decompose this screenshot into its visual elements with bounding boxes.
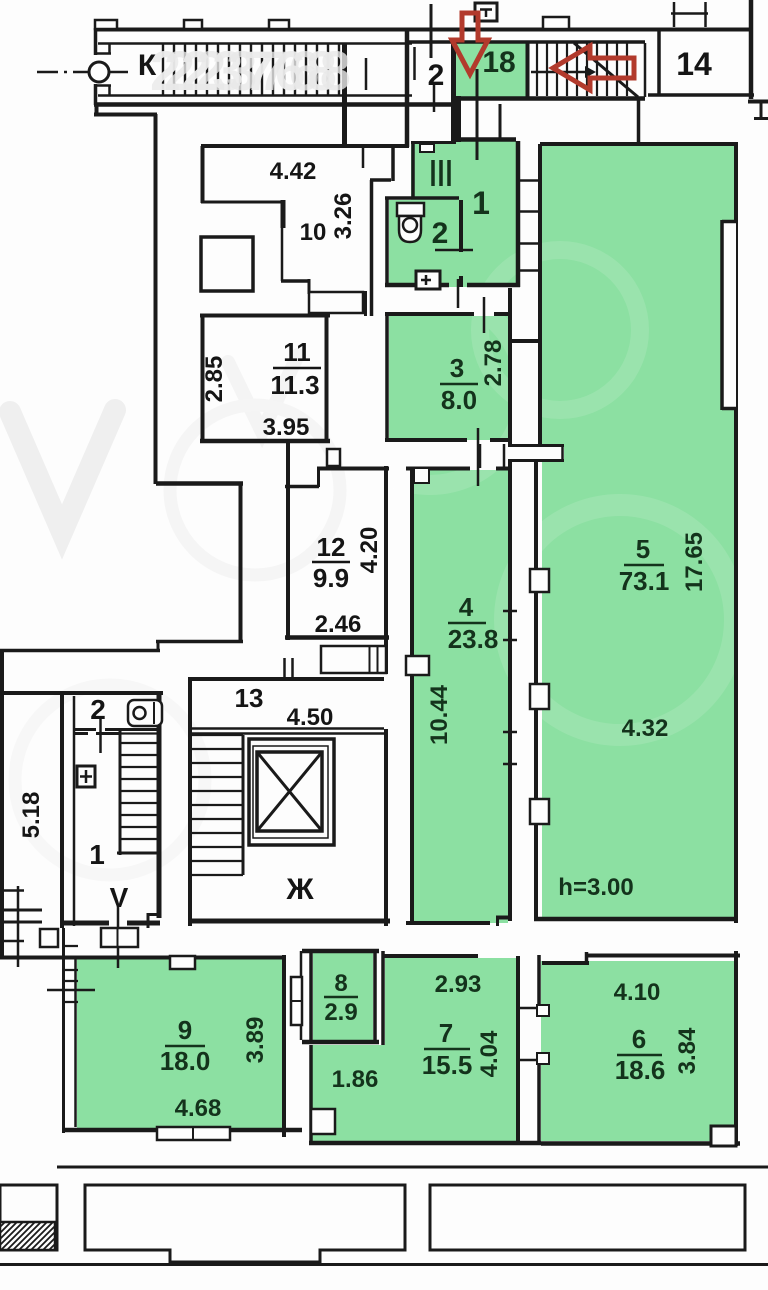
svg-text:11.3: 11.3 [270,370,319,400]
svg-text:73.1: 73.1 [619,566,670,596]
svg-text:3.84: 3.84 [674,1027,701,1074]
svg-text:2: 2 [432,217,449,250]
svg-text:2.93: 2.93 [435,971,482,998]
svg-text:10: 10 [300,219,327,246]
svg-text:2: 2 [90,694,106,725]
svg-text:2.46: 2.46 [315,611,362,638]
svg-text:23.8: 23.8 [448,624,499,654]
svg-text:10.44: 10.44 [426,684,453,745]
svg-text:18: 18 [482,46,515,79]
svg-text:1: 1 [89,839,105,870]
svg-text:4.10: 4.10 [614,979,661,1006]
svg-text:17.65: 17.65 [681,532,708,592]
svg-text:5.18: 5.18 [18,792,45,839]
svg-text:18.6: 18.6 [615,1055,666,1085]
svg-text:2.85: 2.85 [201,356,228,403]
svg-text:7: 7 [439,1018,453,1048]
svg-text:1: 1 [472,185,490,221]
svg-text:4.50: 4.50 [287,704,334,731]
svg-text:1.86: 1.86 [332,1066,379,1093]
svg-text:2: 2 [428,59,445,92]
svg-text:4.20: 4.20 [356,527,383,574]
svg-text:6: 6 [632,1024,646,1054]
svg-text:4.32: 4.32 [622,715,669,742]
svg-text:9.9: 9.9 [313,563,349,593]
svg-text:5: 5 [636,534,650,564]
svg-text:9: 9 [178,1015,192,1045]
svg-text:2.9: 2.9 [324,999,357,1026]
svg-text:4: 4 [459,592,474,622]
svg-text:18.0: 18.0 [160,1046,211,1076]
svg-text:8.0: 8.0 [441,385,477,415]
svg-text:223768: 223768 [164,39,351,102]
svg-text:8: 8 [334,970,347,997]
svg-text:V: V [110,882,129,913]
svg-text:3.26: 3.26 [330,193,357,240]
svg-text:3.95: 3.95 [263,414,310,441]
svg-text:h=3.00: h=3.00 [558,874,633,901]
svg-text:Ж: Ж [285,873,314,906]
svg-text:14: 14 [676,46,712,82]
svg-text:2.78: 2.78 [480,340,507,387]
svg-text:3.89: 3.89 [242,1017,269,1064]
svg-text:4.42: 4.42 [270,158,317,185]
svg-text:15.5: 15.5 [422,1050,473,1080]
svg-text:12: 12 [317,532,346,562]
svg-text:13: 13 [235,683,264,713]
svg-text:3: 3 [450,353,464,383]
svg-text:4.04: 4.04 [476,1030,503,1077]
svg-text:4.68: 4.68 [175,1095,222,1122]
svg-text:11: 11 [283,337,311,367]
